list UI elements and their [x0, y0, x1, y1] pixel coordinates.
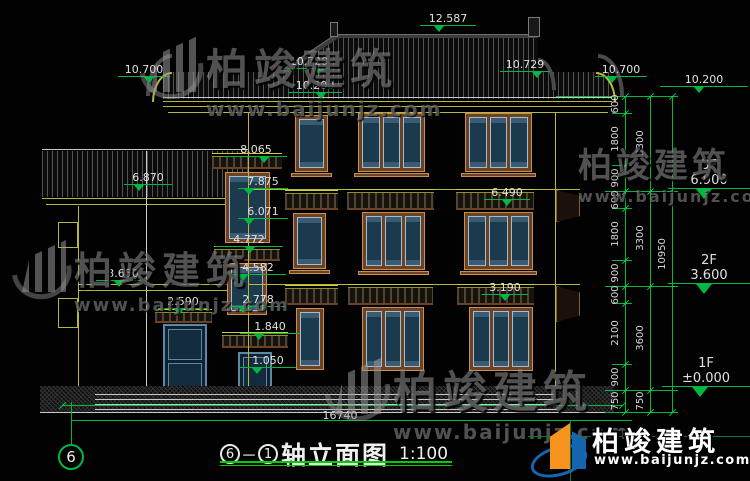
window-pane [511, 216, 529, 266]
window-sill [354, 173, 429, 177]
elevation-value: 1.050 [240, 354, 296, 367]
elevation-marker-stair-awning-3f: 8.065 [225, 143, 287, 163]
axis-start-number: 6 [226, 447, 234, 462]
window-sill [460, 271, 537, 275]
window-pane [385, 216, 401, 266]
window-pane [512, 311, 529, 367]
window-pane [490, 117, 508, 168]
window-1f-wide [469, 307, 533, 371]
window-2f-wide [464, 212, 533, 270]
elevation-value: 4.772 [215, 233, 283, 246]
chain-dim: 3600 [635, 316, 647, 360]
company-logo: 柏竣建筑 www.baijunjz.com [528, 420, 750, 481]
door-panel [168, 329, 202, 360]
chain-dim: 2100 [610, 311, 622, 355]
eave-band-line [163, 106, 612, 107]
elevation-marker-stair-awning-1f: 1.840 [240, 320, 300, 340]
elevation-marker-stair-top-3f: 7.875 [238, 175, 288, 195]
annex-eave-line [42, 198, 248, 199]
elevation-value: 10.200 [660, 73, 748, 86]
title-underline [220, 465, 452, 466]
elevation-drawing: 12.587 10.700 10.729 10.200 10.729 10.70… [0, 0, 750, 481]
chain-dim: 750 [610, 379, 622, 423]
elevation-marker-facade-2f: 6.490 [484, 186, 530, 206]
elevation-marker-stair-bottom-2f: 2.778 [230, 293, 286, 313]
annex-left-edge [78, 206, 79, 392]
window-pane [510, 117, 528, 168]
annex-floor-line [78, 290, 248, 291]
ground-dim-line [62, 405, 622, 406]
window-pane [469, 117, 487, 168]
elevation-marker-eave-right: 10.700 [595, 63, 647, 83]
elevation-value: 10.729 [286, 55, 332, 68]
window-1f-narrow [296, 308, 324, 370]
ridge-ornament-right [528, 17, 540, 37]
logo-url: www.baijunjz.com [594, 453, 750, 468]
window-3f-narrow [295, 115, 328, 172]
chain-dim: 3300 [635, 121, 647, 165]
elevation-value: 6.490 [484, 186, 530, 199]
elevation-value: 10.200 [288, 79, 342, 92]
drawing-title: 6 － 1 轴立面图 1:100 [220, 436, 448, 472]
ground-dimension: 16740 [305, 409, 375, 422]
window-pane [404, 311, 420, 367]
window-sill [358, 271, 429, 275]
window-pane [385, 311, 401, 367]
floor-marker-3f: 3F6.900 [668, 158, 750, 199]
step-line [95, 399, 557, 400]
window-2f-wide [362, 212, 425, 270]
elevation-marker-eave-left: 10.700 [118, 63, 170, 83]
floor-marker-2f: 2F3.600 [668, 253, 750, 294]
floor-name: 1F [662, 356, 750, 371]
wall-corbel [556, 286, 580, 322]
elevation-value: 4.582 [230, 261, 286, 274]
awning-2f [347, 189, 434, 210]
axis-bubble: 6 [58, 444, 84, 470]
title-underline [220, 461, 452, 463]
elevation-marker-eave-left-inner: 10.729 [286, 55, 332, 75]
window-1f-wide [362, 307, 424, 371]
chain-dim: 750 [635, 379, 647, 423]
title-text: 轴立面图 [281, 436, 389, 472]
facade-right-edge [555, 112, 556, 390]
elevation-value: 8.065 [225, 143, 287, 156]
roof-ridge [335, 34, 538, 38]
elevation-marker-annex-roof: 6.870 [124, 171, 172, 191]
window-pane [366, 216, 382, 266]
window-sill [291, 173, 332, 177]
elevation-value: 6.870 [124, 171, 172, 184]
eave-band-line [163, 101, 612, 102]
window-pane [362, 117, 380, 168]
window-2f-narrow [293, 213, 326, 269]
chain-dim: 3300 [635, 216, 647, 260]
floor-name: 2F [668, 253, 750, 268]
logo-building-orange [550, 423, 570, 469]
floor-marker-1f: 1F±0.000 [662, 356, 750, 397]
elevation-marker-stair-top-2f: 4.582 [230, 261, 286, 281]
elevation-marker-stair-bottom-3f: 6.071 [238, 205, 288, 225]
axis-end-number: 1 [264, 447, 272, 462]
elevation-marker-ridge: 12.587 [420, 12, 476, 32]
elevation-value: 10.700 [595, 63, 647, 76]
window-3f-wide [358, 113, 425, 172]
window-pane [383, 117, 401, 168]
window-pane [405, 216, 421, 266]
section-profile-step [58, 298, 78, 328]
window-pane [366, 311, 382, 367]
window-pane [489, 216, 507, 266]
step-line [95, 394, 557, 395]
ridge-ornament-left [330, 22, 338, 37]
elevation-marker-annex-floor: 3.650 [96, 267, 150, 287]
elevation-marker-stair-awning-2f: 4.772 [215, 233, 283, 253]
floor-elevation: ±0.000 [662, 371, 750, 386]
floor-elevation: 6.900 [668, 173, 750, 188]
axis-extension-line [71, 402, 72, 444]
annex-roof-top [42, 149, 248, 150]
chain-line [650, 96, 651, 412]
window-pane [473, 311, 490, 367]
window-pane [493, 311, 510, 367]
window-pane [299, 119, 324, 168]
axis-number: 6 [66, 448, 76, 466]
chain-dim: 1800 [610, 117, 622, 161]
elevation-marker-eave-left-low: 10.200 [288, 79, 342, 99]
elevation-marker-eave-right-inner: 10.729 [500, 58, 550, 78]
elevation-marker-facade-1f: 3.190 [482, 281, 528, 301]
elevation-value: 6.071 [238, 205, 288, 218]
awning-1f [348, 284, 433, 305]
elevation-value: 2.778 [230, 293, 286, 306]
floor-elevation: 3.600 [668, 268, 750, 283]
window-sill [289, 270, 330, 274]
wall-corbel [556, 190, 580, 222]
elevation-value: 1.840 [240, 320, 300, 333]
elevation-value: 3.650 [96, 267, 150, 280]
elevation-marker-stair-top-1f: 1.050 [240, 354, 296, 374]
window-3f-wide [465, 113, 532, 172]
elevation-value: 2.590 [158, 295, 208, 308]
window-pane [403, 117, 421, 168]
window-pane [297, 217, 322, 265]
section-profile-step [58, 222, 78, 248]
logo-building-blue [572, 427, 586, 469]
elevation-marker-parapet: 10.200 [660, 73, 748, 93]
elevation-marker-annex-door: 2.590 [158, 295, 208, 315]
elevation-value: 3.190 [482, 281, 528, 294]
awning-1f [285, 285, 338, 305]
elevation-value: 7.875 [238, 175, 288, 188]
elevation-value: 10.700 [118, 63, 170, 76]
chain-dim: 1800 [610, 212, 622, 256]
elevation-value: 12.587 [420, 12, 476, 25]
awning-2f [285, 190, 338, 210]
window-sill [461, 173, 536, 177]
window-pane [468, 216, 486, 266]
elevation-value: 10.729 [500, 58, 550, 71]
eave-edge-line [163, 97, 612, 98]
floor-name: 3F [668, 158, 750, 173]
window-pane [300, 312, 320, 366]
